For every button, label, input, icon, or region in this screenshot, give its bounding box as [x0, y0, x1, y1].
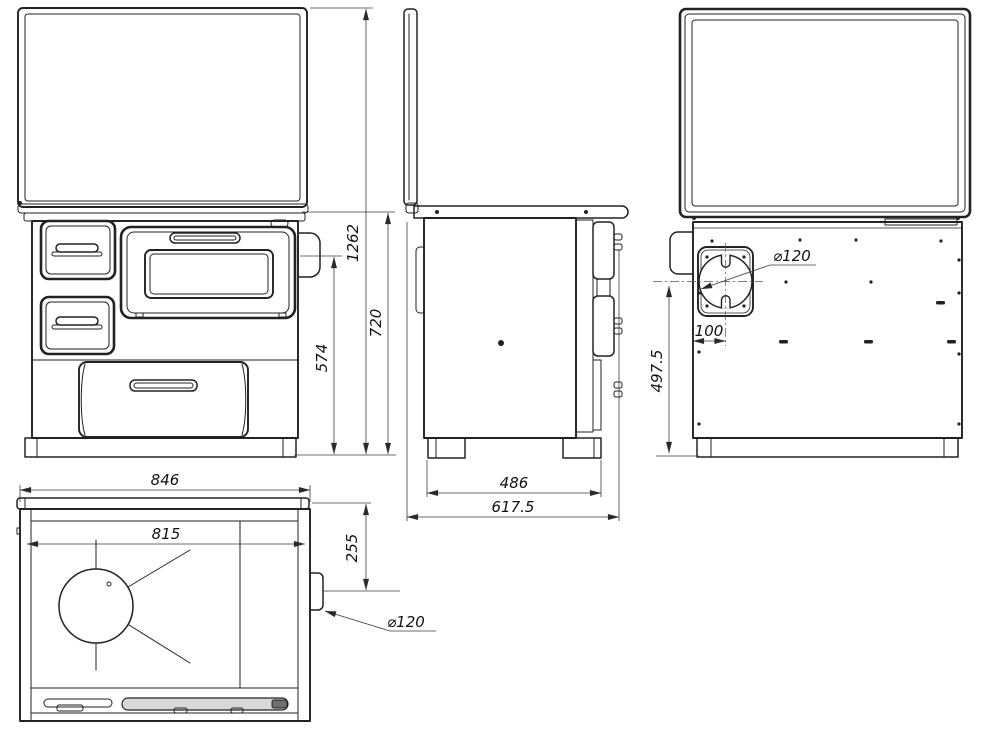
drawer-handle	[130, 380, 197, 391]
hinge-mark	[17, 528, 20, 534]
dim-feet-depth: 486	[427, 460, 601, 497]
side-body	[424, 218, 576, 438]
top-back-rail	[17, 498, 309, 509]
side-front-doors	[576, 220, 622, 432]
dim-plate-width: 815	[27, 525, 305, 544]
dim-label-d120-top: ⌀120	[387, 613, 425, 631]
back-view: ⌀120 100 497.5	[648, 9, 970, 457]
front-lid-open	[18, 8, 308, 213]
dim-flue-from-back: 255	[312, 503, 400, 591]
dim-label-846: 846	[151, 471, 180, 489]
ash-door-side	[593, 296, 614, 356]
flue-plate-side-edge	[416, 247, 424, 313]
dim-label-720: 720	[367, 309, 385, 338]
dim-flue-offset: 100	[693, 322, 726, 341]
stove-technical-drawing: 574 720 1262	[0, 0, 994, 734]
oven-handle-top	[122, 698, 288, 710]
firebox-door-handle	[56, 244, 98, 252]
door-hinges	[614, 234, 622, 397]
side-panel-bolt	[498, 340, 504, 346]
dim-label-497-5: 497.5	[648, 350, 666, 393]
dim-label-815: 815	[152, 525, 181, 543]
front-plinth	[25, 438, 296, 457]
dim-label-d120-back: ⌀120	[773, 247, 811, 265]
firebox-door	[41, 221, 115, 279]
lid-front-edge	[18, 204, 308, 213]
firebox-handle-top	[44, 699, 112, 707]
side-flue-stub-back	[670, 232, 693, 274]
burner-plate	[59, 540, 190, 670]
dim-label-1262: 1262	[344, 224, 362, 262]
drawer-side	[593, 360, 601, 430]
top-front-handles	[44, 698, 288, 713]
dim-flue-height-back: 497.5	[648, 286, 699, 456]
dim-label-255: 255	[343, 534, 361, 563]
ash-drawer	[79, 362, 248, 437]
burner-ring	[59, 569, 133, 643]
side-flue-stub-top	[310, 573, 323, 610]
firebox-door-side	[593, 222, 614, 279]
dim-label-617-5: 617.5	[492, 498, 535, 516]
dim-overall-height: 1262	[310, 8, 373, 454]
ash-door	[41, 297, 114, 354]
drawing-canvas: 574 720 1262	[0, 0, 994, 734]
side-lid-open	[404, 9, 418, 213]
dim-label-100: 100	[695, 322, 724, 340]
back-body	[693, 222, 962, 438]
ash-door-handle	[56, 317, 98, 325]
back-lid-open	[680, 9, 970, 220]
oven-handle-cap	[272, 700, 287, 708]
dim-label-486: 486	[500, 474, 529, 492]
side-feet	[428, 438, 601, 458]
oven-door	[121, 227, 295, 318]
top-view: 846 815	[17, 471, 436, 721]
front-view: 574 720 1262	[18, 8, 396, 457]
dim-flue-diameter-top: ⌀120	[325, 611, 436, 631]
dim-label-574: 574	[313, 344, 331, 373]
side-flue-stub-front	[298, 233, 320, 277]
side-view: 486 617.5	[404, 9, 628, 521]
side-cooktop	[414, 206, 628, 218]
oven-window	[145, 250, 273, 298]
oven-door-handle	[170, 233, 240, 243]
dim-flue-outlet-height: 574	[300, 256, 342, 454]
back-plinth	[697, 438, 958, 457]
